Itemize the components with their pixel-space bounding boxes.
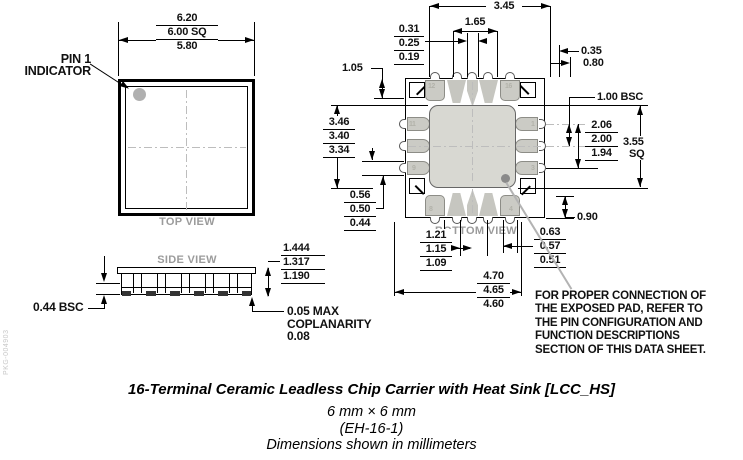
centerline-horizontal xyxy=(128,147,246,148)
leader-line xyxy=(88,308,105,309)
side-view-pad xyxy=(146,291,156,296)
centerline-vertical xyxy=(472,82,473,104)
dim-lead-pitch: 0.44 BSC xyxy=(33,301,83,313)
extension-line xyxy=(96,294,120,295)
castellation xyxy=(430,72,440,79)
arrowhead xyxy=(334,179,340,188)
pin1-indicator-label: PIN 1 INDICATOR xyxy=(6,54,91,77)
dim-value: 0.25 xyxy=(394,37,424,51)
terminal-line xyxy=(141,274,142,293)
pad-number-9: 9 xyxy=(412,165,415,172)
arrowhead xyxy=(101,273,107,282)
dim-value: 4.60 xyxy=(477,298,510,311)
dim-terminal-span: 3.45 xyxy=(486,0,522,12)
pin1-indicator-dot xyxy=(133,88,146,101)
terminal-line xyxy=(133,274,134,293)
leader-line xyxy=(382,68,383,79)
pad-number-11: 11 xyxy=(409,121,415,128)
dim-value: 3.40 xyxy=(323,130,355,144)
arrowhead xyxy=(559,48,568,54)
dim-inner-span: 1.21 1.15 1.09 xyxy=(420,229,452,271)
side-view-pad xyxy=(122,291,131,296)
extension-line xyxy=(546,168,598,169)
terminal-pad-3 xyxy=(515,161,538,175)
arrowhead xyxy=(503,243,512,249)
terminal-line xyxy=(189,274,190,293)
caption-title: 16-Terminal Ceramic Leadless Chip Carrie… xyxy=(0,381,743,398)
extension-line xyxy=(331,105,428,106)
dim-value: 5.80 xyxy=(156,40,218,53)
arrowhead xyxy=(380,176,386,185)
side-view-pad xyxy=(242,291,251,296)
arrowhead xyxy=(512,289,521,295)
extension-line xyxy=(517,220,518,253)
centerline-vertical xyxy=(472,109,473,184)
pin1-label-line2: INDICATOR xyxy=(6,66,91,78)
centerline-vertical xyxy=(472,189,473,215)
terminal-pad-8 xyxy=(425,195,445,216)
arrowhead xyxy=(463,245,472,251)
extension-line xyxy=(96,283,120,284)
dim-value: 6.00 SQ xyxy=(156,26,218,40)
castellation xyxy=(430,217,440,224)
note-line: FOR PROPER CONNECTION OF xyxy=(535,290,706,303)
extension-line xyxy=(570,57,571,77)
dim-epad-square-suffix: SQ xyxy=(627,148,647,160)
centerline-vertical xyxy=(186,90,187,212)
arrowhead xyxy=(561,60,570,66)
arrowhead xyxy=(101,295,107,304)
extension-line xyxy=(478,33,479,77)
extension-line xyxy=(487,220,488,256)
dim-edge-offset: 0.35 xyxy=(581,45,602,57)
arrowhead xyxy=(430,3,439,9)
arrowhead xyxy=(379,89,385,98)
extension-line xyxy=(518,105,648,106)
dim-lead-width: 0.31 0.25 0.19 xyxy=(394,23,424,65)
dim-value: 1.444 xyxy=(281,242,325,256)
terminal-pad-1 xyxy=(515,117,538,131)
pad-number-1: 1 xyxy=(531,121,534,128)
drawing-code: PKG-004903 xyxy=(3,330,10,375)
castellation xyxy=(399,119,406,129)
leader-line xyxy=(566,217,575,218)
pad-number-4: 4 xyxy=(509,206,512,213)
terminal-line xyxy=(213,274,214,293)
pad-number-3: 3 xyxy=(531,165,534,172)
dim-line xyxy=(395,292,476,293)
arrowhead xyxy=(245,37,254,43)
terminal-line xyxy=(165,274,166,293)
dim-value: 0.31 xyxy=(394,23,424,37)
extension-line xyxy=(254,22,255,76)
centerline-horizontal xyxy=(408,146,428,147)
dim-pitch: 1.00 BSC xyxy=(597,91,643,103)
leader-line xyxy=(252,311,284,312)
terminal-line xyxy=(181,274,182,293)
dim-corner-pad: 1.05 xyxy=(342,62,363,74)
extension-line xyxy=(118,22,119,76)
arrowhead xyxy=(575,159,581,168)
terminal-pad-9 xyxy=(407,161,430,175)
castellation xyxy=(483,217,493,224)
extension-line xyxy=(104,256,105,273)
top-view-label: TOP VIEW xyxy=(140,216,234,228)
extension-line xyxy=(453,31,454,77)
arrowhead xyxy=(637,178,643,187)
arrowhead xyxy=(575,124,581,133)
dim-value: 0.44 xyxy=(344,217,376,231)
terminal-line xyxy=(205,274,206,293)
dim-epad-square: 3.55 xyxy=(621,136,646,148)
extension-line xyxy=(362,161,404,162)
arrowhead xyxy=(453,28,462,34)
dim-value: 0.19 xyxy=(394,51,424,65)
castellation xyxy=(467,217,477,224)
dim-value: 3.34 xyxy=(323,144,355,158)
dim-bottom-offset: 0.90 xyxy=(577,211,598,223)
arrowhead xyxy=(379,79,385,88)
dim-value: 1.190 xyxy=(281,270,325,284)
arrowhead xyxy=(334,105,340,114)
dim-epad-height: 3.46 3.40 3.34 xyxy=(323,116,355,158)
dim-value: 1.15 xyxy=(420,243,452,257)
arrowhead xyxy=(369,151,375,160)
exposed-pad-note: FOR PROPER CONNECTION OF THE EXPOSED PAD… xyxy=(535,290,706,357)
arrowhead xyxy=(541,3,550,9)
note-line: THE PIN CONFIGURATION AND xyxy=(535,317,706,330)
arrowhead xyxy=(265,288,271,297)
arrowhead xyxy=(395,289,404,295)
pad-number-8: 8 xyxy=(429,206,432,213)
castellation xyxy=(505,217,515,224)
dim-corner-offset: 0.80 xyxy=(583,57,604,69)
terminal-line xyxy=(237,274,238,293)
extension-line xyxy=(518,188,648,189)
dim-value: 0.56 xyxy=(344,189,376,203)
caption-size: 6 mm × 6 mm xyxy=(0,404,743,420)
extension-line xyxy=(546,218,574,219)
leader-line xyxy=(375,208,384,209)
coplanarity-line3: 0.08 xyxy=(287,330,371,343)
caption-package-code: (EH-16-1) xyxy=(0,421,743,437)
coplanarity-note: 0.05 MAX COPLANARITY 0.08 xyxy=(287,305,371,343)
arrowhead xyxy=(488,28,497,34)
dim-value: 4.70 xyxy=(477,270,510,284)
extension-line xyxy=(521,222,522,296)
dim-value: 1.317 xyxy=(281,256,325,270)
castellation xyxy=(483,72,493,79)
leader-line xyxy=(425,41,459,42)
extension-line xyxy=(394,222,395,296)
dim-outer-span: 4.70 4.65 4.60 xyxy=(477,270,510,311)
arrowhead xyxy=(637,106,643,115)
arrowhead xyxy=(451,245,460,251)
dim-value: 3.46 xyxy=(323,116,355,130)
arrowhead xyxy=(562,196,568,205)
package-outline-drawing: 6.20 6.00 SQ 5.80 PIN 1 INDICATOR TOP VI… xyxy=(0,0,743,460)
dim-value: 0.50 xyxy=(344,203,376,217)
terminal-line xyxy=(157,274,158,293)
dim-package-height: 1.444 1.317 1.190 xyxy=(281,242,325,284)
castellation xyxy=(399,141,406,151)
arrowhead xyxy=(458,38,467,44)
dim-value: 4.65 xyxy=(477,284,510,298)
dim-value: 1.09 xyxy=(420,257,452,271)
dim-body-size: 6.20 6.00 SQ 5.80 xyxy=(156,12,218,53)
dim-value: 1.94 xyxy=(585,147,618,161)
centerline-horizontal xyxy=(517,146,543,147)
note-line: FUNCTION DESCRIPTIONS xyxy=(535,330,706,343)
dim-value: 2.00 xyxy=(585,133,618,147)
leader-line xyxy=(569,97,595,98)
dim-pad-width: 0.63 0.57 0.51 xyxy=(534,226,566,268)
extension-line xyxy=(550,6,551,77)
side-view-pad xyxy=(218,291,228,296)
dim-value: 6.20 xyxy=(156,12,218,26)
side-view-label: SIDE VIEW xyxy=(140,254,234,266)
coplanarity-line1: 0.05 MAX xyxy=(287,305,371,318)
caption-units: Dimensions shown in millimeters xyxy=(0,437,743,453)
pad-number-12: 12 xyxy=(428,83,435,90)
dim-pad-gap: 0.56 0.50 0.44 xyxy=(344,189,376,231)
terminal-line xyxy=(229,274,230,293)
note-line: SECTION OF THIS DATA SHEET. xyxy=(535,344,706,357)
corner-pad xyxy=(409,82,425,98)
pad-number-16: 16 xyxy=(505,83,512,90)
extension-line xyxy=(497,31,498,77)
arrowhead xyxy=(478,38,487,44)
dim-inner-pitch: 1.65 xyxy=(455,16,495,28)
side-view-pad xyxy=(194,291,204,296)
arrowhead xyxy=(119,37,128,43)
dim-value: 1.21 xyxy=(420,229,452,243)
castellation xyxy=(399,163,406,173)
castellation xyxy=(505,72,515,79)
side-view-pad xyxy=(170,291,180,296)
arrowhead xyxy=(265,267,271,276)
castellation xyxy=(467,72,477,79)
arrowhead xyxy=(566,137,572,146)
extension-line xyxy=(467,33,468,77)
extension-line xyxy=(460,220,461,256)
dim-value: 2.06 xyxy=(585,119,618,133)
leader-line xyxy=(268,261,280,262)
dim-line xyxy=(568,51,579,52)
arrowhead xyxy=(249,297,255,306)
dim-pad-span: 2.06 2.00 1.94 xyxy=(585,119,618,161)
note-line: THE EXPOSED PAD, REFER TO xyxy=(535,303,706,316)
extension-line xyxy=(374,98,404,99)
arrowhead xyxy=(566,124,572,133)
corner-pad xyxy=(520,82,536,98)
